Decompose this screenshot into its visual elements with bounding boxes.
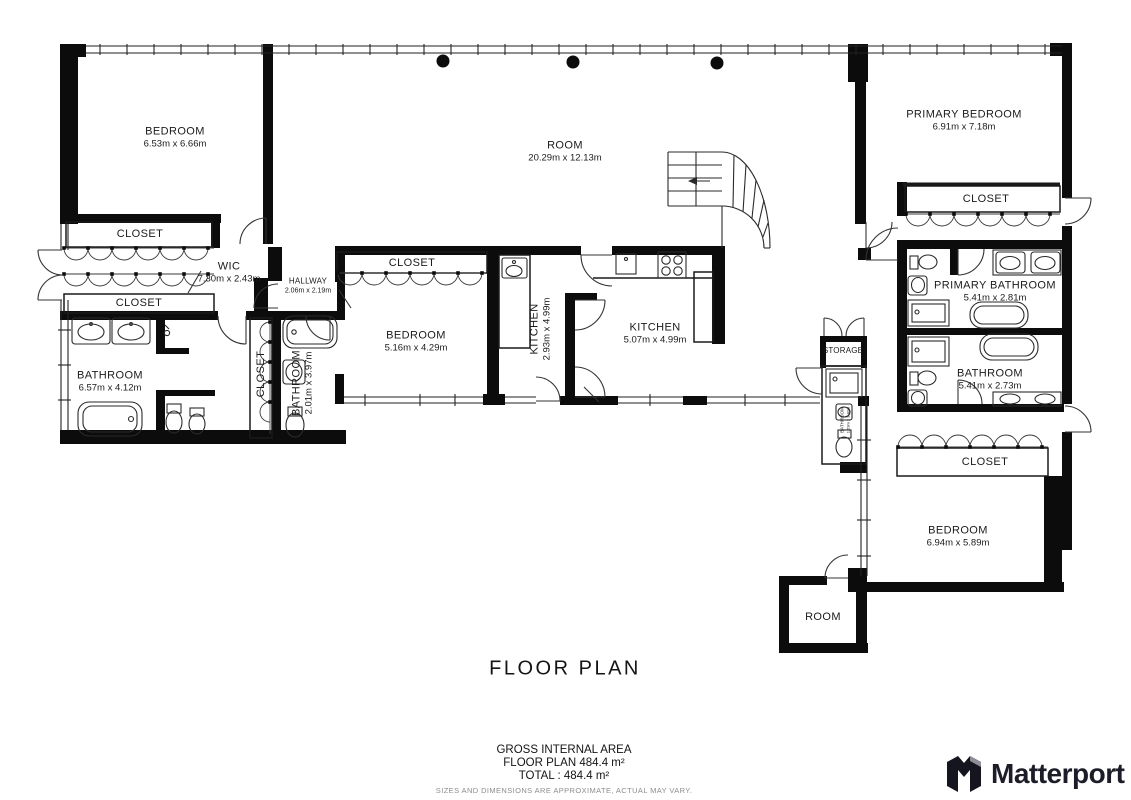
gross-internal-area-label: GROSS INTERNAL AREA [436,744,692,757]
area-summary: GROSS INTERNAL AREA FLOOR PLAN 484.4 m² … [436,744,692,795]
bathtub-icon [970,302,1028,328]
room-label-bathroom-inner: BATHROOM 2.01m x 3.97m [290,350,317,416]
room-label-closet-middle: CLOSET [389,256,435,270]
structural-columns [437,55,724,70]
kitchen-sink-icon [502,258,527,278]
room-label-primary-bathroom: PRIMARY BATHROOM 5.41m x 2.81m [934,279,1056,306]
floor-plan-area-value: FLOOR PLAN 484.4 m² [436,757,692,770]
room-label-kitchen-main: KITCHEN 5.07m x 4.99m [624,321,687,348]
walls-solid [60,43,1072,653]
room-label-closet-left-upper: CLOSET [117,227,163,241]
bathtub-icon [980,334,1038,360]
room-label-bedroom-right: BEDROOM 6.94m x 5.89m [927,524,990,551]
toilet-icon [910,371,936,385]
toilet-icon [836,430,852,457]
page-title: FLOOR PLAN [489,658,641,681]
room-label-wic: WIC 7.30m x 2.43m [198,260,261,287]
room-label-bathroom-left: BATHROOM 6.57m x 4.12m [77,369,143,396]
shower-icon [826,369,862,397]
matterport-logo: Matterport [944,753,1124,795]
floor-plan-page: BEDROOM 6.53m x 6.66m CLOSET WIC 7.30m x… [0,0,1131,800]
room-label-bathroom-small: BATHROOM 1.29m x 3.40m [839,407,850,433]
room-label-closet-primary: CLOSET [963,192,1009,206]
stove-icon [658,252,686,278]
room-label-room-main: ROOM 20.29m x 12.13m [528,139,601,166]
toilet-icon [910,255,937,269]
matterport-wordmark: Matterport [991,758,1124,790]
shower-icon [164,325,169,336]
double-sink-vanity-icon [72,318,150,344]
room-label-closet-right: CLOSET [962,455,1008,469]
sink-icon [908,390,927,406]
double-sink-vanity-icon [993,392,1061,406]
room-label-closet-vertical: CLOSET [254,351,268,397]
total-area-value: TOTAL : 484.4 m² [436,770,692,783]
double-sink-vanity-icon [993,250,1061,275]
toilet-icon [166,404,182,433]
shower-icon [908,337,949,366]
room-label-bedroom-left: BEDROOM 6.53m x 6.66m [144,125,207,152]
room-label-storage: STORAGE [823,346,863,356]
room-label-bedroom-middle: BEDROOM 5.16m x 4.29m [385,329,448,356]
bathtub-icon [283,316,337,348]
curved-staircase [668,152,770,248]
sink-icon [908,276,927,295]
room-label-room-small: ROOM [805,610,841,624]
room-label-bathroom-right: BATHROOM 5.41m x 2.73m [957,367,1023,394]
appliance-icon [616,254,636,274]
room-label-closet-left-lower: CLOSET [116,296,162,310]
room-label-primary-bedroom: PRIMARY BEDROOM 6.91m x 7.18m [906,108,1022,135]
room-label-hallway: HALLWAY 2.06m x 2.19m [285,276,331,295]
disclaimer-text: SIZES AND DIMENSIONS ARE APPROXIMATE, AC… [436,787,692,796]
room-label-kitchen-small: KITCHEN 2.93m x 4.99m [528,298,555,361]
matterport-m-icon [944,753,984,795]
